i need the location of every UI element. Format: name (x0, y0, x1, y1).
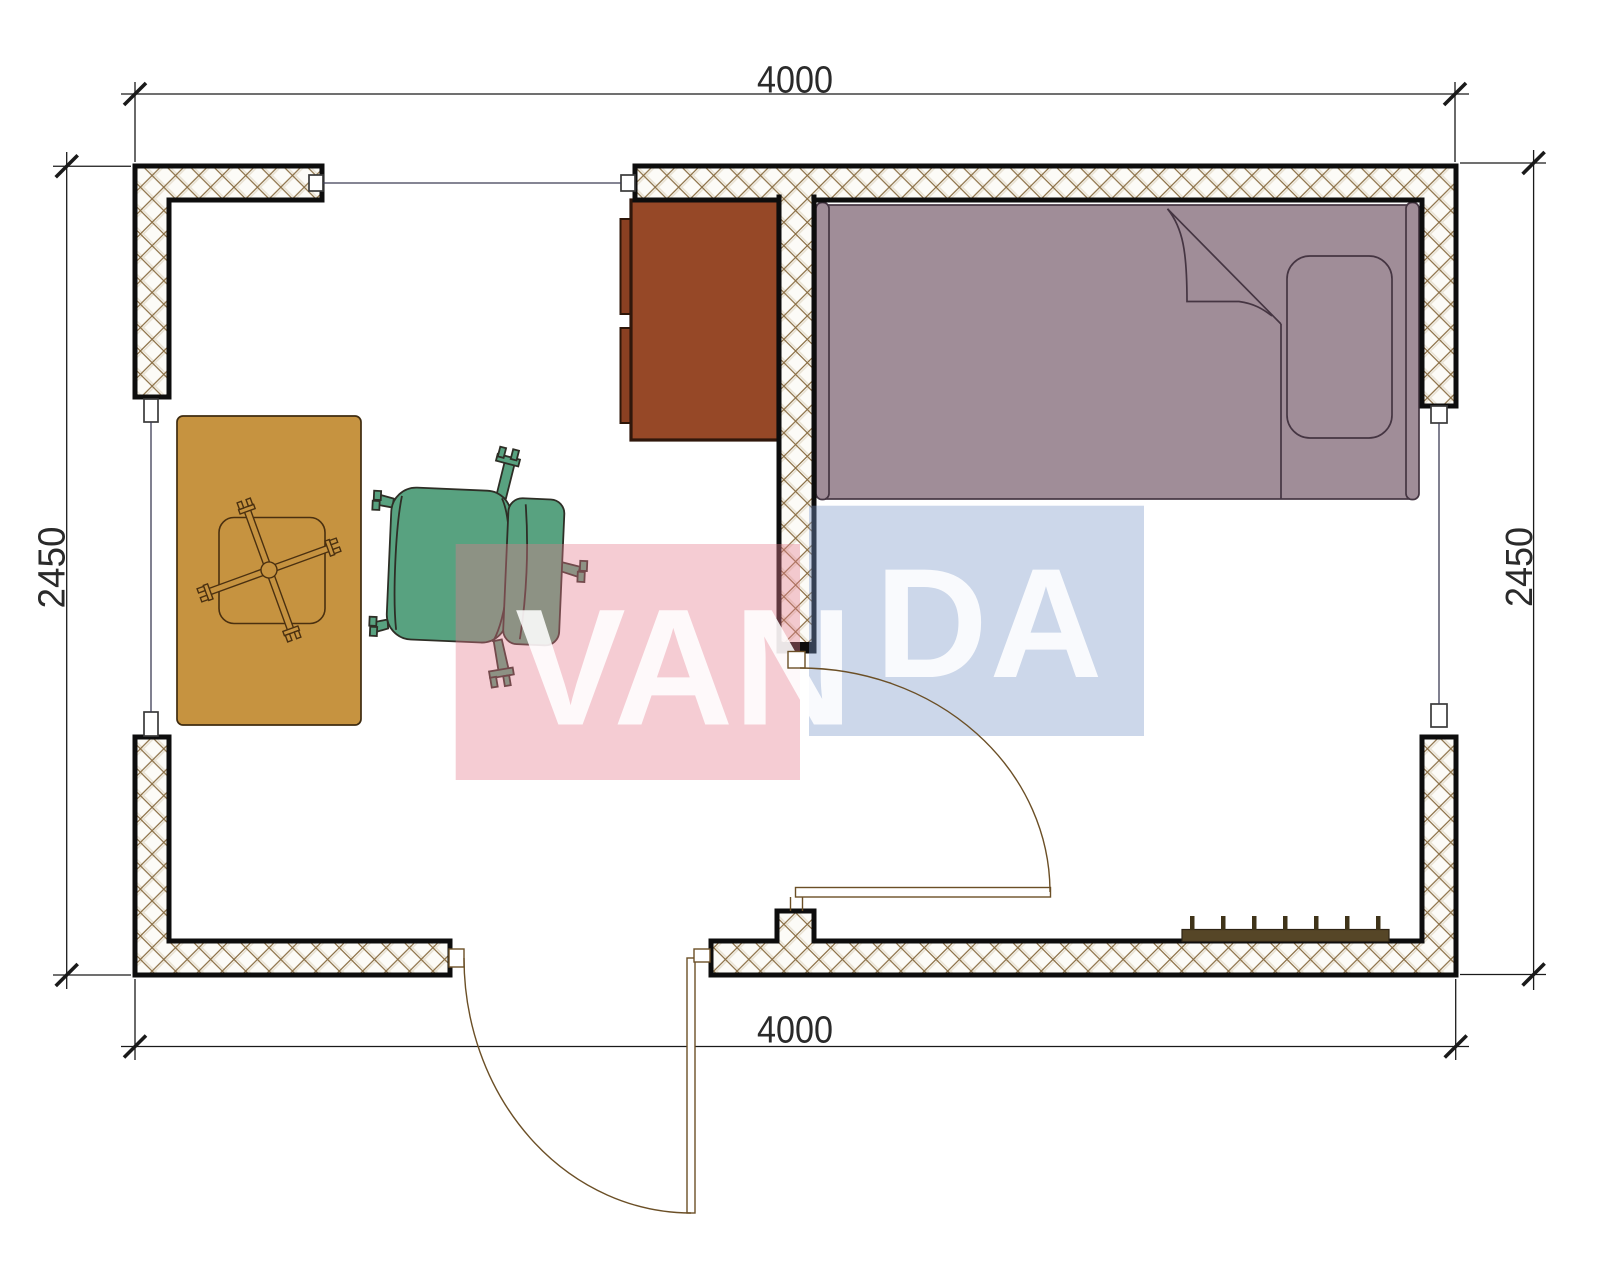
svg-text:DA: DA (875, 537, 1104, 711)
svg-text:2450: 2450 (1498, 527, 1541, 607)
svg-text:4000: 4000 (757, 59, 833, 102)
svg-text:2450: 2450 (31, 527, 74, 609)
svg-text:4000: 4000 (757, 1009, 833, 1052)
